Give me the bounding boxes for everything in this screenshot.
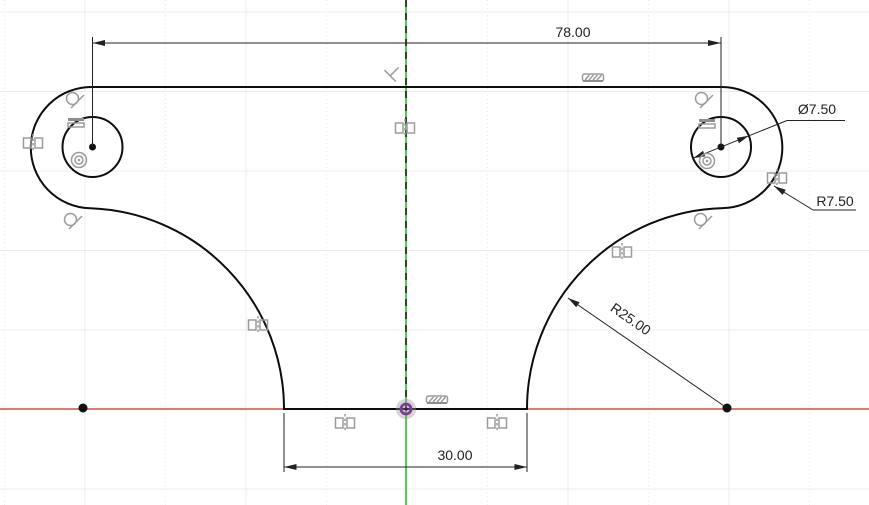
left-arc-center-point[interactable] bbox=[79, 404, 88, 413]
dim-label-end-radius[interactable]: R7.50 bbox=[816, 193, 854, 209]
origin-point[interactable] bbox=[396, 399, 416, 419]
sketch-canvas[interactable]: 78.00 Ø7.50 R7.50 R25.00 30.00 bbox=[0, 0, 869, 505]
sketch-viewport[interactable]: 78.00 Ø7.50 R7.50 R25.00 30.00 bbox=[0, 0, 869, 505]
grid-lines bbox=[0, 0, 869, 505]
origin-dot bbox=[404, 407, 407, 410]
dim-label-top-width[interactable]: 78.00 bbox=[555, 24, 590, 40]
dim-label-hole-diameter[interactable]: Ø7.50 bbox=[798, 101, 836, 117]
dim-label-bottom-width[interactable]: 30.00 bbox=[437, 447, 472, 463]
